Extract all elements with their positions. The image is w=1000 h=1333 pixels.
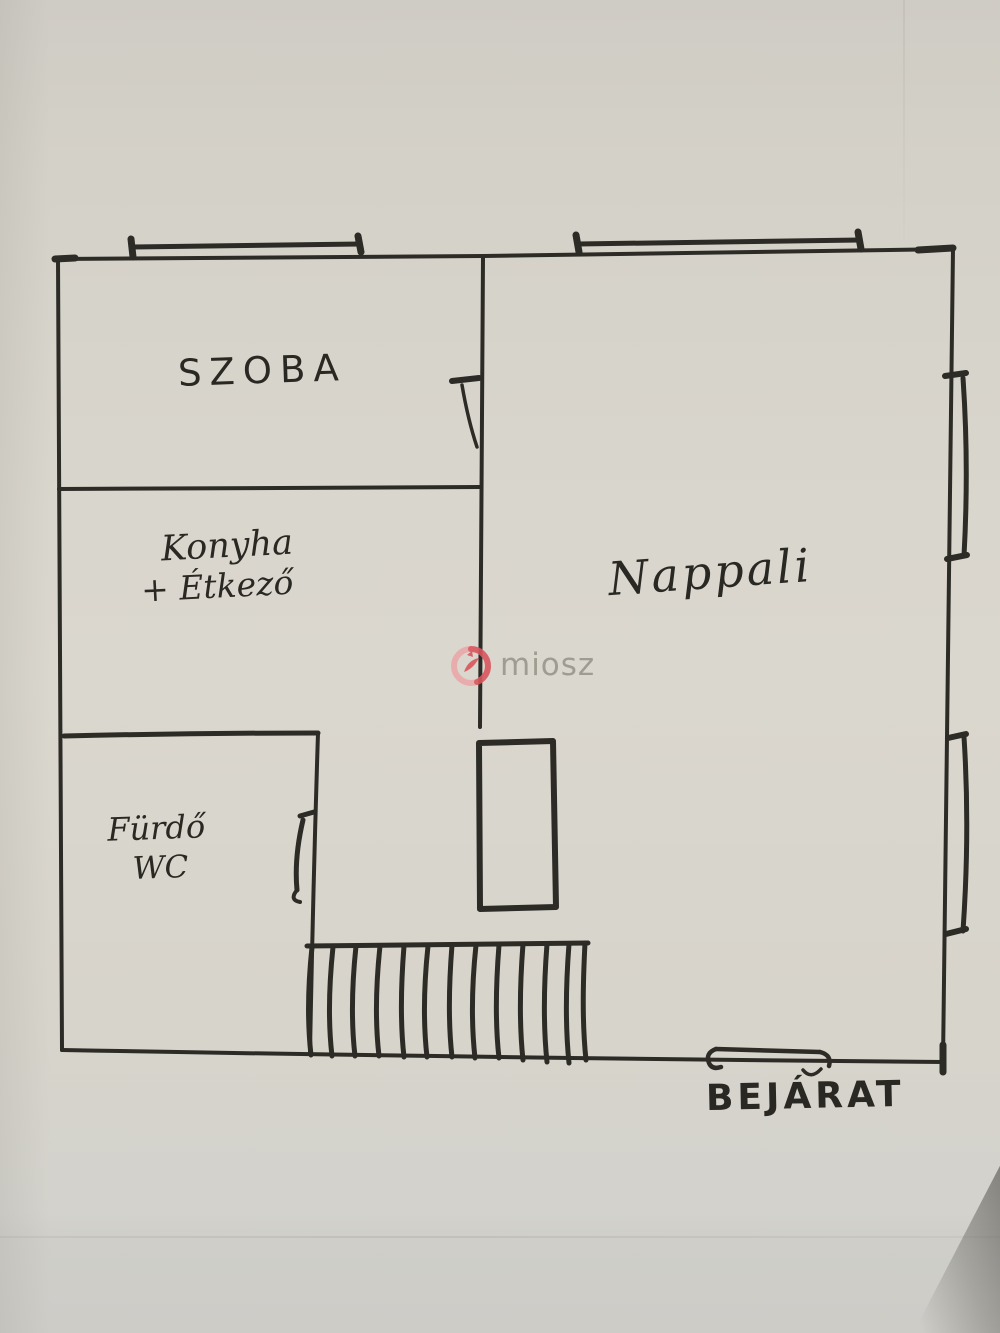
floor-plan-page: SZOBA Konyha + Étkező Fürdő WC Nappali B…: [0, 0, 1000, 1333]
stairs: [307, 943, 588, 1063]
entrance-label: BEJÁRAT: [706, 1076, 905, 1118]
door-swing-szoba: [452, 378, 479, 447]
floor-plan-drawing: [0, 0, 1000, 1333]
window-marker-top-right: [576, 232, 861, 252]
room-label-furdo: Fürdő WC: [107, 810, 207, 886]
window-marker-right-lower: [946, 734, 967, 934]
window-marker-top-left: [131, 236, 361, 257]
pillar: [479, 741, 556, 909]
room-label-konyha: Konyha + Étkező: [160, 525, 296, 607]
door-swing-bathroom: [294, 812, 314, 902]
room-label-konyha-line2: + Étkező: [140, 565, 296, 608]
room-label-furdo-line2: WC: [132, 850, 207, 885]
room-label-konyha-line1: Konyha: [160, 525, 294, 569]
room-label-szoba: SZOBA: [177, 349, 347, 394]
room-label-furdo-line1: Fürdő: [107, 810, 206, 847]
